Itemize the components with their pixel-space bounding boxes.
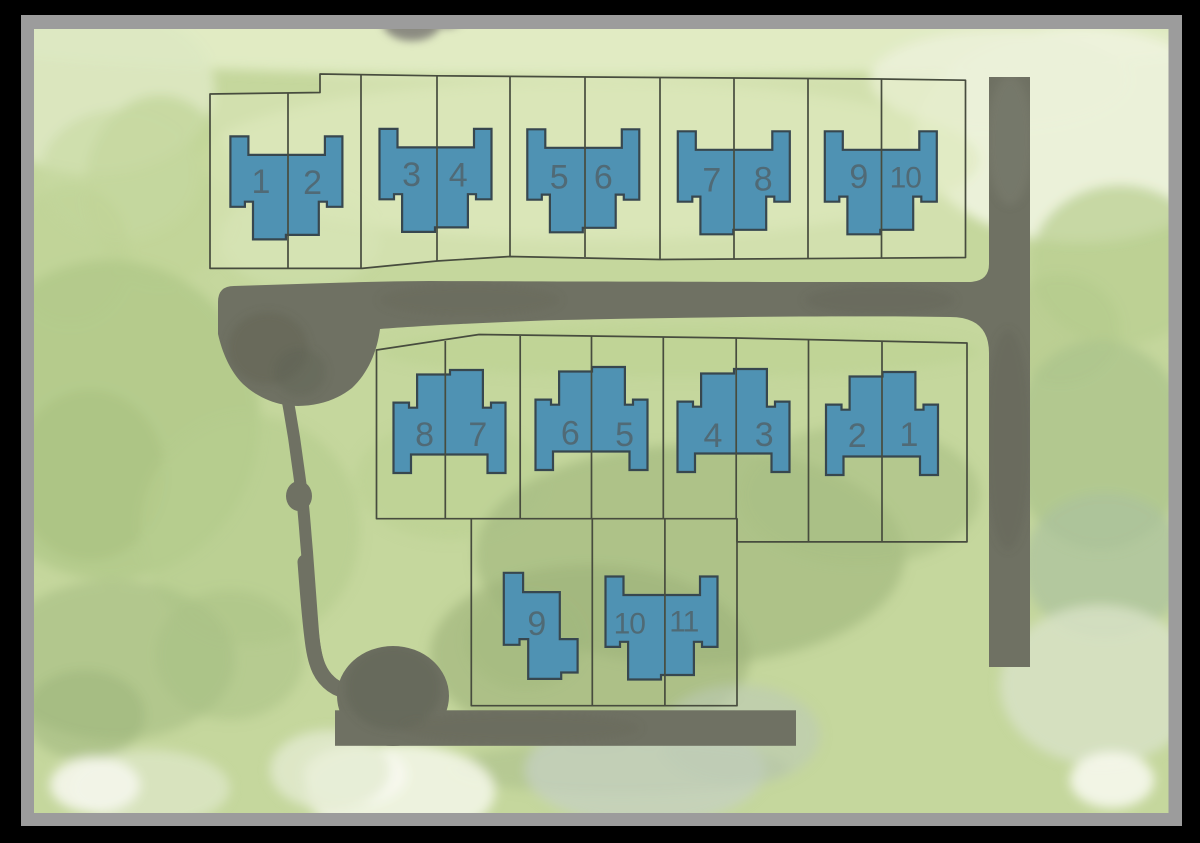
svg-text:9: 9	[849, 158, 868, 196]
svg-text:10: 10	[614, 607, 646, 640]
svg-text:1: 1	[252, 163, 271, 201]
svg-text:4: 4	[704, 417, 723, 455]
svg-text:1: 1	[899, 416, 918, 454]
svg-text:7: 7	[702, 162, 721, 200]
svg-text:3: 3	[755, 416, 774, 454]
svg-text:2: 2	[303, 164, 322, 202]
svg-text:6: 6	[594, 159, 613, 197]
svg-text:8: 8	[415, 416, 434, 454]
svg-text:5: 5	[615, 416, 634, 454]
svg-text:10: 10	[890, 161, 922, 194]
svg-text:2: 2	[848, 417, 867, 455]
svg-text:3: 3	[402, 156, 421, 194]
svg-text:4: 4	[449, 157, 468, 195]
svg-text:11: 11	[669, 606, 698, 639]
svg-text:6: 6	[561, 415, 580, 453]
svg-text:5: 5	[550, 159, 569, 197]
svg-text:9: 9	[527, 605, 546, 643]
svg-text:8: 8	[754, 161, 773, 199]
svg-text:7: 7	[468, 416, 487, 454]
